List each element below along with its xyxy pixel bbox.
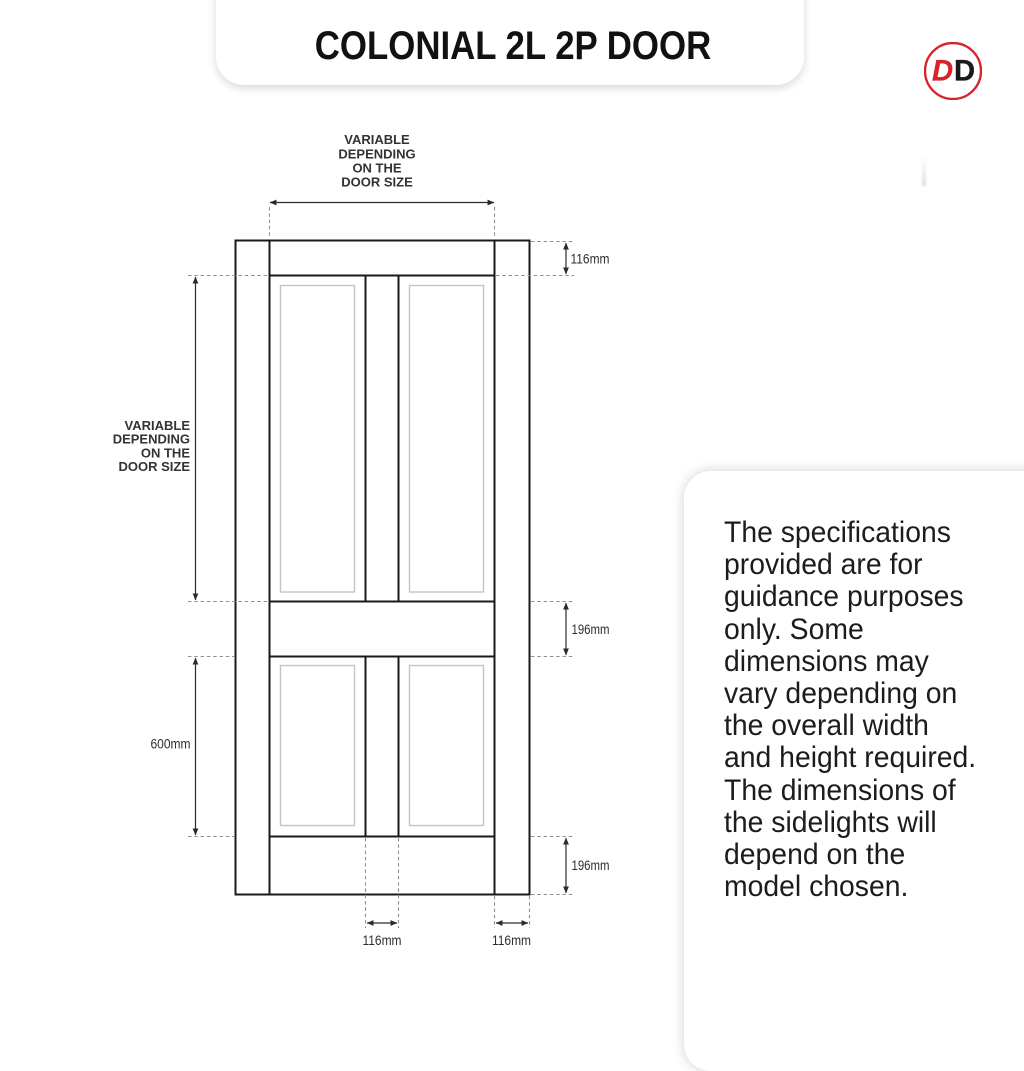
svg-text:196mm: 196mm: [572, 622, 610, 638]
svg-text:ON THE: ON THE: [352, 161, 401, 176]
svg-text:DOOR SIZE: DOOR SIZE: [118, 459, 190, 474]
svg-text:600mm: 600mm: [151, 737, 191, 753]
svg-text:116mm: 116mm: [492, 933, 531, 949]
svg-text:VARIABLE: VARIABLE: [344, 132, 410, 147]
svg-text:116mm: 116mm: [571, 252, 610, 268]
svg-text:DEPENDING: DEPENDING: [113, 432, 190, 447]
svg-text:DOOR SIZE: DOOR SIZE: [341, 175, 413, 190]
svg-text:116mm: 116mm: [363, 933, 402, 949]
svg-text:DEPENDING: DEPENDING: [338, 147, 415, 162]
svg-text:196mm: 196mm: [572, 858, 610, 874]
